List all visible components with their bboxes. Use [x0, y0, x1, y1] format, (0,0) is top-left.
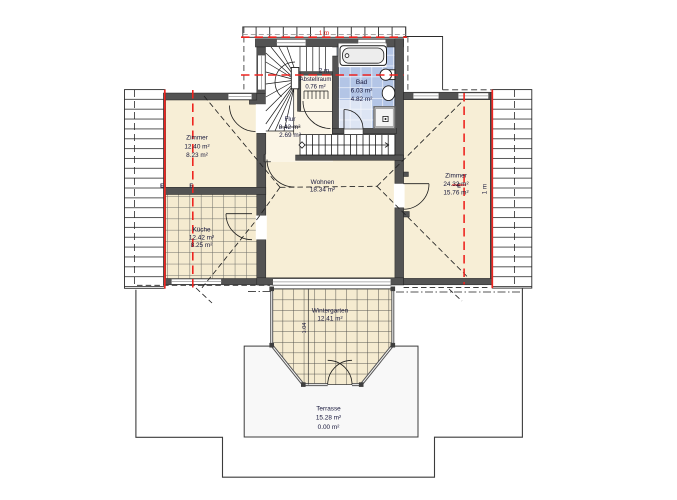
- svg-text:Flur: Flur: [284, 116, 296, 123]
- svg-text:15.76 m²: 15.76 m²: [443, 190, 468, 197]
- svg-text:Küche: Küche: [192, 227, 211, 234]
- svg-text:6.03 m²: 6.03 m²: [351, 88, 373, 95]
- svg-text:4.82 m²: 4.82 m²: [351, 96, 373, 103]
- svg-text:0.76 m²: 0.76 m²: [305, 85, 325, 91]
- svg-text:Zimmer: Zimmer: [445, 173, 468, 180]
- svg-text:0.00 m²: 0.00 m²: [318, 424, 340, 431]
- svg-text:15.28 m²: 15.28 m²: [316, 415, 341, 422]
- svg-text:Wohnen: Wohnen: [311, 179, 335, 186]
- svg-text:2.69 m²: 2.69 m²: [279, 132, 301, 139]
- svg-text:1 m: 1 m: [319, 30, 329, 37]
- svg-text:1.04: 1.04: [302, 323, 308, 334]
- svg-text:1 m: 1 m: [482, 184, 489, 195]
- svg-text:8.42 m²: 8.42 m²: [279, 124, 301, 131]
- svg-text:12.41 m²: 12.41 m²: [317, 316, 342, 323]
- svg-text:Terrasse: Terrasse: [316, 406, 341, 413]
- svg-text:18.34 m²: 18.34 m²: [310, 187, 335, 194]
- svg-text:Bad: Bad: [356, 79, 368, 86]
- svg-text:12.42 m²: 12.42 m²: [189, 234, 214, 241]
- svg-text:Abstellraum: Abstellraum: [300, 77, 332, 83]
- svg-text:12.40 m²: 12.40 m²: [184, 143, 209, 150]
- svg-text:E: E: [160, 183, 164, 189]
- svg-text:24.32 m²: 24.32 m²: [443, 181, 468, 188]
- svg-text:E: E: [189, 183, 193, 189]
- svg-text:2 m: 2 m: [319, 68, 329, 75]
- svg-text:8.23 m²: 8.23 m²: [186, 152, 208, 159]
- svg-text:Zimmer: Zimmer: [186, 135, 209, 142]
- svg-text:8.25 m²: 8.25 m²: [191, 242, 213, 249]
- svg-text:Wintergarten: Wintergarten: [312, 308, 349, 315]
- svg-text:E: E: [457, 183, 461, 189]
